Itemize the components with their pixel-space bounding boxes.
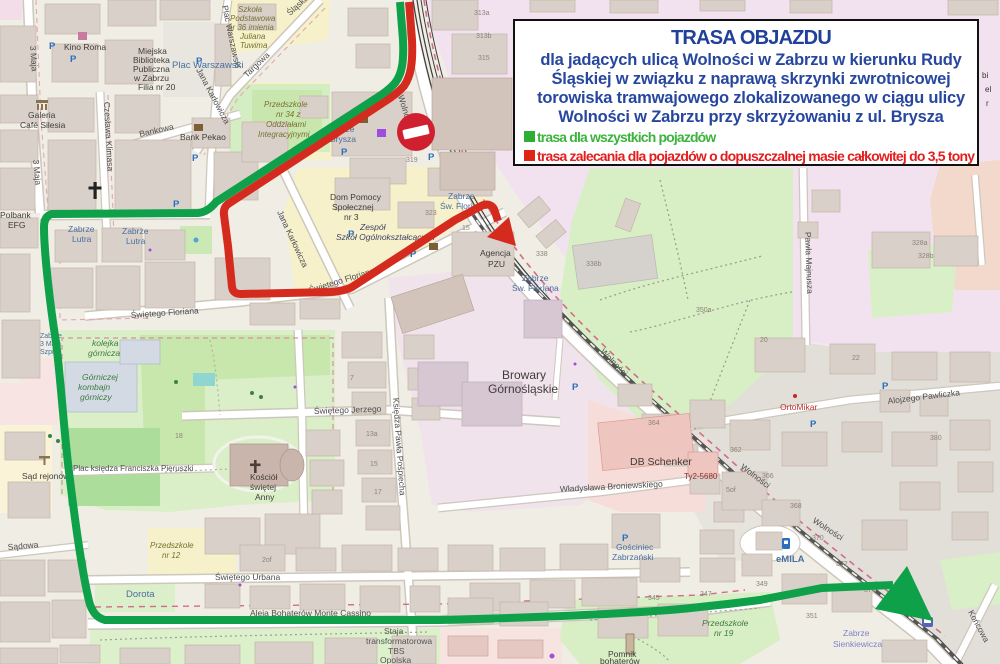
svg-text:13a: 13a [366,431,378,438]
svg-text:362: 362 [730,447,742,454]
svg-text:17: 17 [374,489,382,496]
svg-text:Lutra: Lutra [72,234,92,244]
svg-text:górniczy: górniczy [80,392,112,402]
svg-text:Ty2-5680: Ty2-5680 [684,472,718,481]
svg-text:Górniczej: Górniczej [82,372,119,382]
svg-text:315: 315 [478,55,490,62]
svg-text:świętej: świętej [250,482,276,492]
svg-text:372: 372 [836,561,848,568]
svg-text:Gościniec: Gościniec [616,542,654,552]
svg-text:15: 15 [462,225,470,232]
svg-text:eMILA: eMILA [776,554,805,565]
svg-text:15: 15 [370,461,378,468]
svg-text:Kościół: Kościół [250,472,278,482]
svg-text:PZU: PZU [488,259,505,269]
svg-text:Opolska: Opolska [380,655,411,664]
svg-text:Tuwima: Tuwima [240,41,268,50]
svg-text:P: P [810,419,817,430]
svg-text:319: 319 [406,157,418,164]
svg-text:Świętego Urbana: Świętego Urbana [215,571,280,582]
svg-text:Polbank: Polbank [0,210,31,220]
svg-text:Szkoła: Szkoła [238,5,263,14]
svg-text:górnicza: górnicza [88,348,120,358]
svg-text:Społecznej: Społecznej [332,202,374,212]
svg-text:338: 338 [536,251,548,258]
svg-text:Juliana: Juliana [239,32,266,41]
svg-text:3 Maja: 3 Maja [28,45,40,71]
svg-text:328b: 328b [918,253,934,260]
svg-text:22: 22 [852,355,860,362]
svg-text:P: P [173,199,180,210]
svg-text:EFG: EFG [8,220,25,230]
svg-text:Zabrze: Zabrze [843,628,870,638]
svg-text:5of: 5of [726,487,736,494]
svg-text:Plac księdza Franciszka Pierus: Plac księdza Franciszka Pieruszki [73,464,194,473]
svg-text:Filia nr 20: Filia nr 20 [138,82,176,92]
svg-text:Agencja: Agencja [480,248,511,258]
svg-text:313b: 313b [476,33,492,40]
svg-text:Górnośląskie: Górnośląskie [488,382,558,396]
svg-text:OrtoMikar: OrtoMikar [780,402,817,412]
svg-text:P: P [49,41,56,52]
svg-text:Plac Warszawski: Plac Warszawski [172,60,243,71]
svg-text:el: el [985,85,991,94]
svg-text:P: P [70,54,77,65]
svg-text:nr 19: nr 19 [714,628,734,638]
svg-text:nr 34 z: nr 34 z [276,110,300,119]
svg-text:kolejka: kolejka [92,338,119,348]
svg-text:Przedszkole: Przedszkole [702,618,749,628]
svg-text:2of: 2of [262,557,272,564]
svg-text:18: 18 [175,433,183,440]
svg-text:Św. Floriana: Św. Floriana [512,282,559,293]
svg-text:r: r [986,99,989,108]
svg-text:351: 351 [806,613,818,620]
svg-text:Dorota: Dorota [126,589,155,600]
svg-text:nr 12: nr 12 [162,551,181,560]
svg-text:338b: 338b [586,261,602,268]
svg-text:Galeria: Galeria [28,110,56,120]
svg-text:347: 347 [700,591,712,598]
svg-text:DB Schenker: DB Schenker [630,456,692,468]
svg-text:7: 7 [350,375,354,382]
svg-text:Zabrze: Zabrze [448,191,475,201]
svg-text:366: 366 [762,473,774,480]
svg-text:20: 20 [760,337,768,344]
svg-text:370: 370 [812,535,824,542]
svg-text:Integracyjnymi: Integracyjnymi [258,130,310,139]
svg-text:nr 3: nr 3 [344,212,359,222]
svg-text:P: P [428,152,435,163]
svg-text:Browary: Browary [502,368,546,382]
svg-text:Zespół: Zespół [359,222,387,232]
svg-text:Zabrze: Zabrze [122,226,149,236]
svg-text:kombajn: kombajn [78,382,110,392]
svg-text:323: 323 [425,210,437,217]
svg-text:368: 368 [790,503,802,510]
svg-text:364: 364 [648,420,660,427]
svg-text:P: P [882,381,889,392]
svg-text:Lutra: Lutra [126,236,146,246]
svg-text:Kino Roma: Kino Roma [64,42,106,52]
svg-text:350a: 350a [696,307,712,314]
svg-text:nr 36 imienia: nr 36 imienia [228,23,274,32]
svg-text:bohaterów: bohaterów [600,656,641,664]
svg-text:Przedszkole: Przedszkole [150,541,194,550]
svg-text:345: 345 [648,595,660,602]
svg-text:349: 349 [756,581,768,588]
svg-text:Dom Pomocy: Dom Pomocy [330,192,382,202]
svg-text:Podstawowa: Podstawowa [230,14,276,23]
svg-text:Oddziałami: Oddziałami [266,120,306,129]
svg-text:bi: bi [982,71,988,80]
svg-text:328a: 328a [912,240,928,247]
svg-text:380: 380 [930,435,942,442]
svg-text:P: P [341,147,348,158]
svg-text:Staja: Staja [384,626,404,636]
svg-text:Café Silesia: Café Silesia [20,120,66,130]
svg-text:transformatorowa: transformatorowa [366,636,432,646]
svg-text:Anny: Anny [255,492,275,502]
svg-text:Zabrze: Zabrze [522,273,549,283]
svg-text:Przedszkole: Przedszkole [264,100,308,109]
svg-text:Zabrze: Zabrze [68,224,95,234]
svg-text:P: P [192,153,199,164]
svg-text:Sienkiewicza: Sienkiewicza [833,639,882,649]
svg-text:313a: 313a [474,10,490,17]
svg-text:P: P [572,382,579,393]
svg-text:Bank Pekao: Bank Pekao [180,132,226,142]
svg-text:Zabrzański: Zabrzański [612,552,654,562]
